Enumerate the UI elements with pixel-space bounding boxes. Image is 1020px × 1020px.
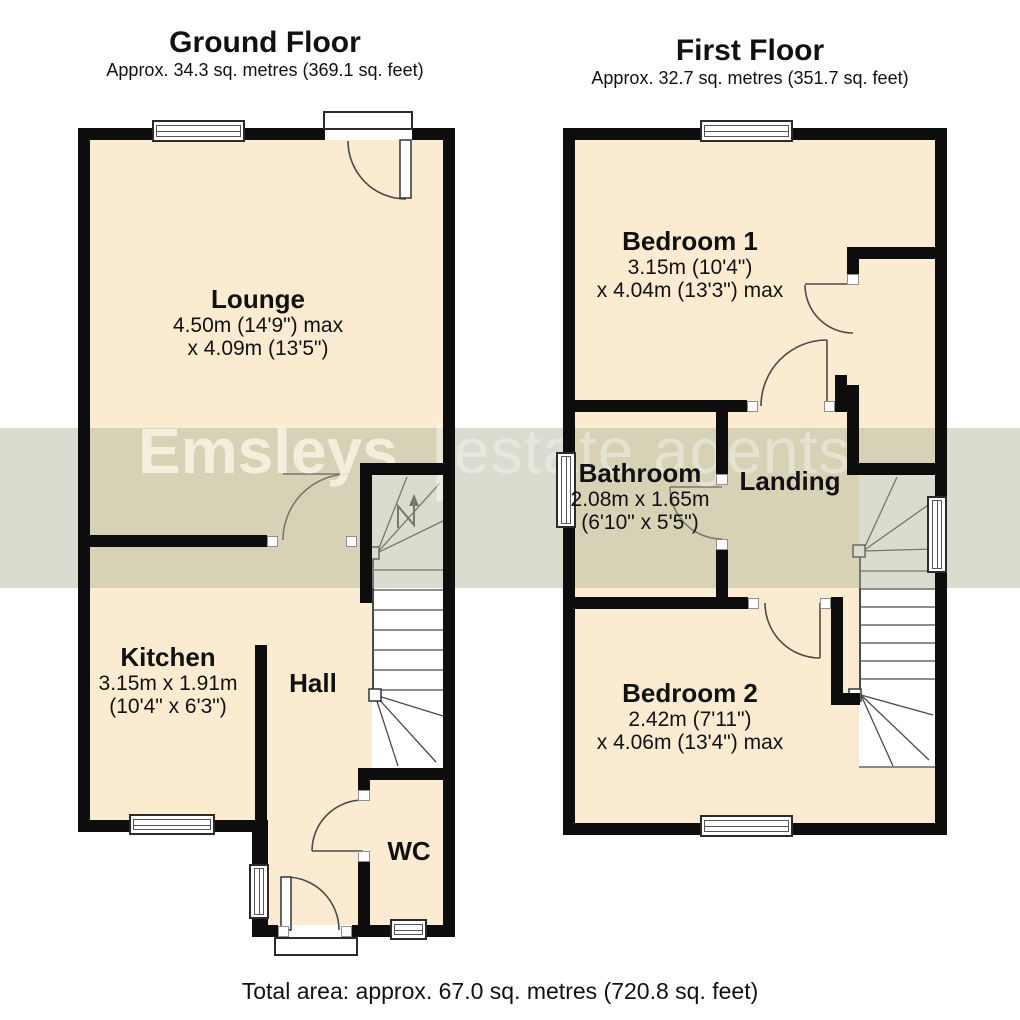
room-dimensions: 3.15m (10'4") — [597, 256, 784, 279]
room-dimensions: x 4.09m (13'5") — [173, 337, 343, 360]
wall — [575, 400, 747, 412]
wall — [78, 140, 90, 832]
window — [927, 496, 947, 573]
wall — [847, 463, 935, 475]
wall — [835, 375, 847, 412]
ground-floor-subtitle: Approx. 34.3 sq. metres (369.1 sq. feet) — [106, 60, 423, 81]
window — [700, 120, 793, 142]
watermark-band: Emsleys | estate agents — [0, 428, 1020, 588]
door-threshold — [747, 401, 758, 412]
room-name: Lounge — [173, 284, 343, 314]
door-threshold — [358, 851, 370, 862]
door-threshold — [820, 598, 831, 609]
door-threshold — [716, 474, 728, 485]
first-floor-title: First Floor — [676, 34, 824, 68]
room-dimensions: x 4.04m (13'3") max — [597, 279, 784, 302]
wall — [831, 597, 843, 705]
window — [249, 864, 269, 919]
total-area-text: Total area: approx. 67.0 sq. metres (720… — [242, 978, 759, 1005]
entrance-step — [323, 111, 413, 130]
wall — [935, 140, 947, 835]
room-name: Bathroom — [571, 458, 710, 488]
door-threshold — [748, 598, 759, 609]
door-threshold — [346, 536, 357, 547]
room-dimensions: 3.15m x 1.91m — [99, 672, 238, 695]
window — [129, 814, 215, 835]
room-dimensions: (6'10" x 5'5") — [571, 511, 710, 534]
wall — [252, 925, 278, 937]
watermark-brand: Emsleys — [138, 414, 398, 488]
wall — [90, 535, 267, 547]
wall — [847, 385, 859, 475]
room-name: WC — [387, 836, 430, 866]
room-dimensions: x 4.06m (13'4") max — [597, 731, 784, 754]
door-threshold — [847, 274, 859, 285]
room-dimensions: 2.42m (7'11") — [597, 708, 784, 731]
room-label-bathroom: Bathroom 2.08m x 1.65m (6'10" x 5'5") — [571, 458, 710, 534]
room-label-kitchen: Kitchen 3.15m x 1.91m (10'4" x 6'3") — [99, 642, 238, 718]
room-name: Bedroom 2 — [597, 678, 784, 708]
door-threshold — [267, 536, 278, 547]
wall — [847, 247, 935, 259]
floorplan-canvas: Ground Floor Approx. 34.3 sq. metres (36… — [0, 0, 1020, 1020]
room-name: Landing — [739, 466, 840, 496]
room-label-hall: Hall — [289, 668, 337, 698]
door-threshold — [358, 790, 370, 801]
wall — [360, 475, 372, 603]
room-dimensions: 4.50m (14'9") max — [173, 314, 343, 337]
door-threshold — [278, 926, 289, 937]
room-name: Bedroom 1 — [597, 226, 784, 256]
room-dimensions: 2.08m x 1.65m — [571, 488, 710, 511]
room-name: Kitchen — [99, 642, 238, 672]
room-label-bedroom2: Bedroom 2 2.42m (7'11") x 4.06m (13'4") … — [597, 678, 784, 754]
wall — [443, 140, 455, 937]
window — [152, 120, 245, 142]
wall — [831, 693, 860, 705]
room-label-landing: Landing — [739, 466, 840, 496]
wall — [360, 463, 443, 475]
door-threshold — [824, 401, 835, 412]
room-dimensions: (10'4" x 6'3") — [99, 695, 238, 718]
wall — [412, 128, 455, 140]
entrance-step — [274, 937, 358, 956]
room-name: Hall — [289, 668, 337, 698]
door-threshold — [341, 926, 352, 937]
room-label-bedroom1: Bedroom 1 3.15m (10'4") x 4.04m (13'3") … — [597, 226, 784, 302]
wall — [716, 412, 728, 474]
wall — [847, 259, 859, 274]
ground-floor-title: Ground Floor — [169, 26, 361, 60]
wall — [358, 862, 370, 925]
window — [390, 919, 427, 940]
wall — [255, 645, 267, 820]
first-floor-subtitle: Approx. 32.7 sq. metres (351.7 sq. feet) — [591, 68, 908, 89]
window — [700, 815, 793, 837]
room-label-lounge: Lounge 4.50m (14'9") max x 4.09m (13'5") — [173, 284, 343, 360]
room-label-wc: WC — [387, 836, 430, 866]
wall — [358, 768, 443, 780]
wall — [575, 597, 748, 609]
door-threshold — [716, 539, 728, 550]
